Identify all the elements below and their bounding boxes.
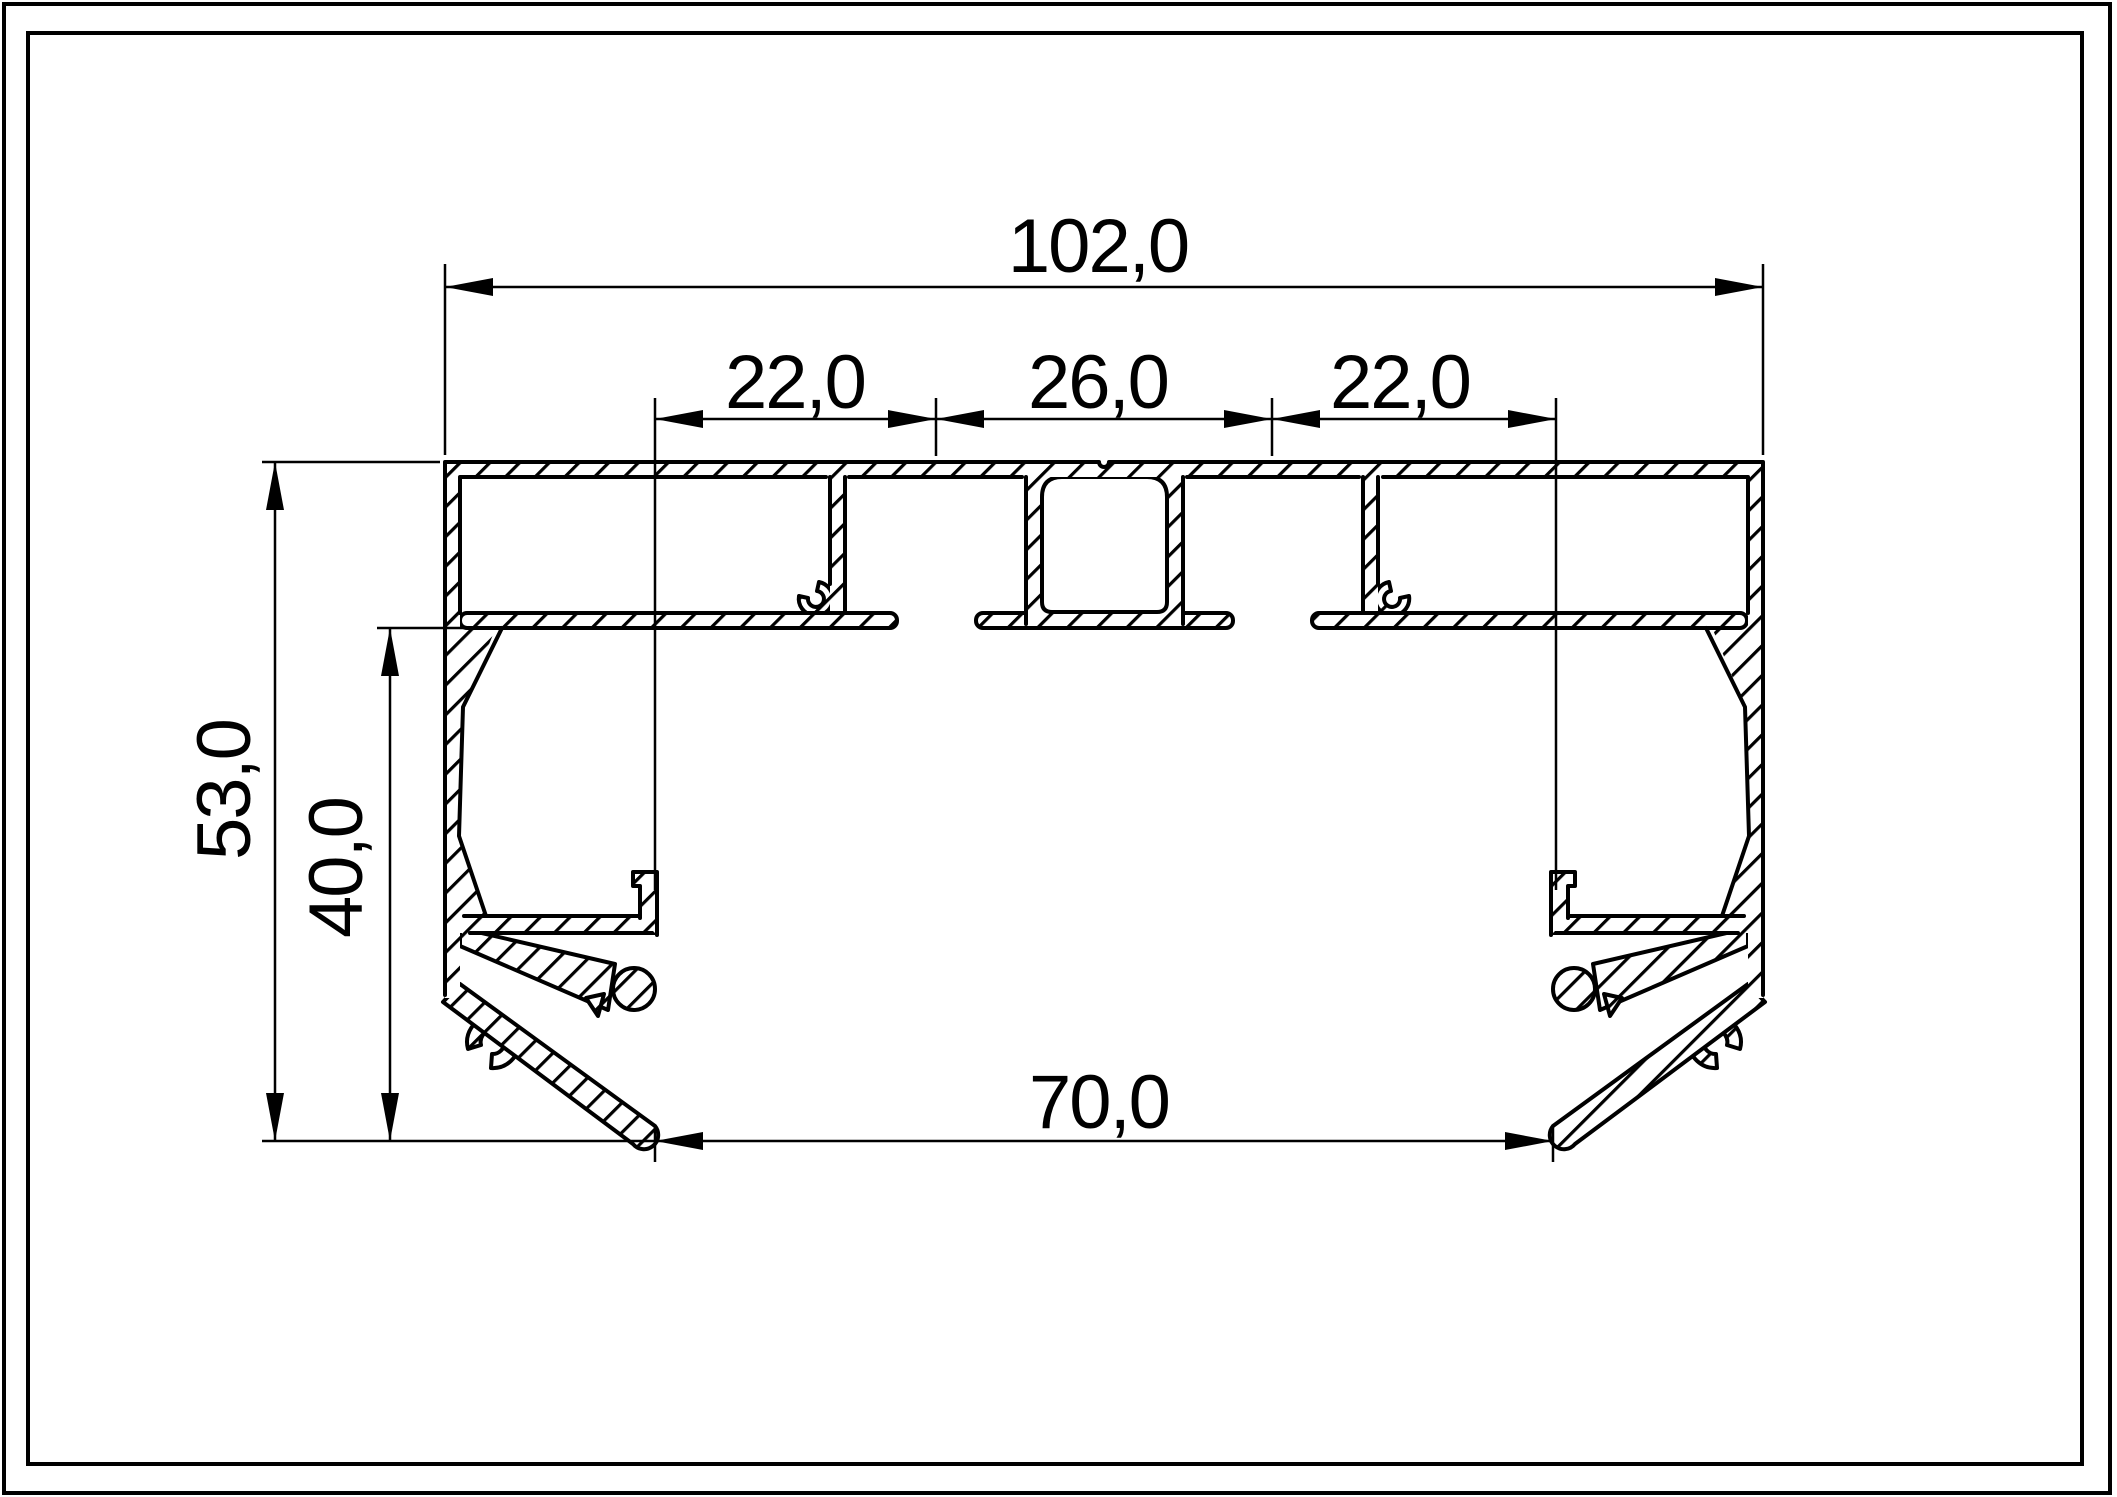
clip-tooth xyxy=(1604,994,1622,1016)
dim-label-slot-left: 22,0 xyxy=(725,340,865,425)
center-box xyxy=(1026,465,1183,626)
dim-label-overall-width: 102,0 xyxy=(1008,204,1188,289)
profile-drawing: 102,0 22,0 26,0 22,0 53,0 40,0 70,0 xyxy=(0,0,2117,1497)
clip-head xyxy=(613,968,655,1010)
arrow xyxy=(381,1093,399,1141)
arrow xyxy=(266,462,284,510)
dim-label-slot-right: 22,0 xyxy=(1330,340,1470,425)
floor-left xyxy=(470,916,657,933)
clip-head xyxy=(1553,968,1595,1010)
floor-right xyxy=(1551,916,1738,933)
arrow xyxy=(266,1093,284,1141)
dimension-labels: 102,0 22,0 26,0 22,0 53,0 40,0 70,0 xyxy=(182,204,1470,1145)
drawing-sheet: 102,0 22,0 26,0 22,0 53,0 40,0 70,0 xyxy=(0,0,2117,1497)
dim-label-bottom-width: 70,0 xyxy=(1029,1060,1169,1145)
arrow xyxy=(936,410,984,428)
dim-label-inner-height: 40,0 xyxy=(294,798,379,938)
arrow xyxy=(655,1132,703,1150)
arrow xyxy=(381,628,399,676)
dim-label-overall-height: 53,0 xyxy=(182,720,267,860)
screw-boss-right xyxy=(1375,582,1409,616)
arrow xyxy=(445,278,493,296)
clip-arm-left xyxy=(460,928,655,1016)
web-left xyxy=(830,465,845,613)
web-right xyxy=(1363,465,1378,613)
profile-section xyxy=(443,462,1765,1149)
top-wall xyxy=(445,462,1763,477)
arrow xyxy=(1505,1132,1553,1150)
screw-boss-left xyxy=(799,582,833,616)
arrow xyxy=(1715,278,1763,296)
dim-label-center: 26,0 xyxy=(1028,340,1168,425)
arrow xyxy=(655,410,703,428)
arrow xyxy=(1508,410,1556,428)
arrow xyxy=(1224,410,1272,428)
shelf-left xyxy=(460,613,897,628)
wall-upper-right xyxy=(1748,462,1763,628)
center-box-cavity-outline xyxy=(1042,477,1167,612)
wall-upper-left xyxy=(445,462,460,628)
arrow xyxy=(1272,410,1320,428)
arrow xyxy=(888,410,936,428)
clip-arm-right xyxy=(1553,928,1748,1016)
clip-tooth xyxy=(586,994,604,1016)
shelf-right xyxy=(1312,613,1747,628)
